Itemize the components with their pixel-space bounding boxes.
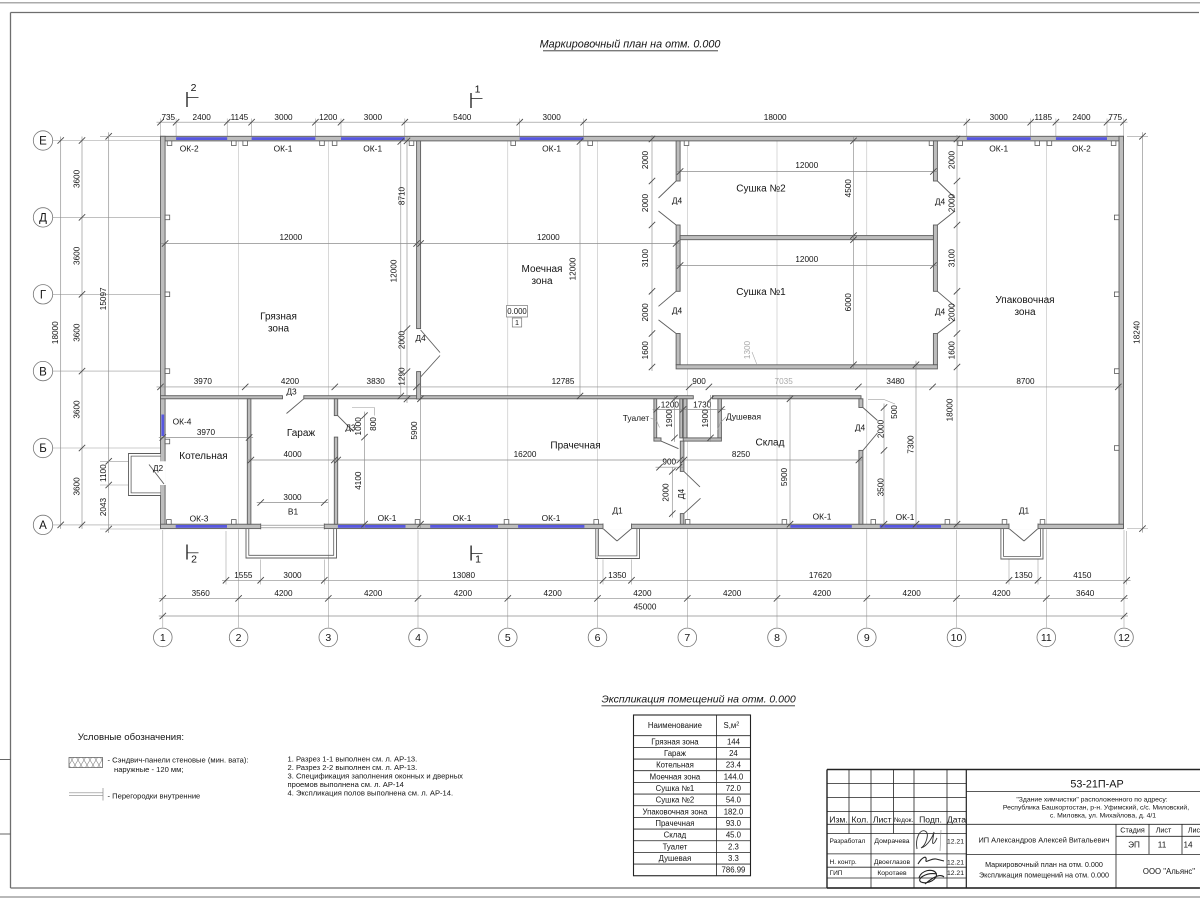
svg-text:3970: 3970 — [194, 377, 213, 386]
svg-text:2043: 2043 — [99, 497, 108, 516]
svg-text:18000: 18000 — [946, 398, 955, 421]
svg-text:12000: 12000 — [795, 161, 818, 170]
svg-text:ОК-1: ОК-1 — [274, 143, 293, 153]
svg-text:Туалет: Туалет — [623, 413, 650, 423]
svg-text:В: В — [39, 366, 47, 378]
svg-text:4200: 4200 — [454, 589, 473, 598]
svg-text:23.4: 23.4 — [726, 761, 742, 770]
svg-text:16200: 16200 — [514, 450, 537, 459]
svg-text:Гараж: Гараж — [664, 749, 687, 758]
svg-text:4200: 4200 — [723, 589, 742, 598]
svg-text:54.0: 54.0 — [726, 796, 742, 805]
svg-text:ОК-1: ОК-1 — [989, 143, 1008, 153]
svg-text:6: 6 — [595, 632, 601, 644]
svg-text:ОК-2: ОК-2 — [180, 143, 199, 153]
svg-text:ОК-1: ОК-1 — [896, 512, 915, 522]
svg-text:ИП Александров Алексей Виталье: ИП Александров Алексей Витальевич — [978, 836, 1109, 845]
svg-text:2000: 2000 — [641, 150, 650, 169]
svg-text:900: 900 — [662, 458, 676, 467]
svg-text:Д3: Д3 — [286, 387, 297, 397]
svg-text:3000: 3000 — [274, 113, 293, 122]
svg-text:4200: 4200 — [544, 589, 563, 598]
svg-text:зона: зона — [531, 276, 553, 287]
svg-text:7: 7 — [684, 632, 690, 644]
svg-text:2000: 2000 — [876, 419, 885, 438]
svg-text:53-21П-АР: 53-21П-АР — [1070, 779, 1123, 791]
svg-text:Сушка №2: Сушка №2 — [656, 796, 695, 805]
svg-text:1: 1 — [160, 632, 166, 644]
svg-text:"Здание химчистки" расположенн: "Здание химчистки" расположенного по адр… — [1016, 797, 1167, 804]
svg-text:182.0: 182.0 — [724, 807, 744, 816]
svg-text:1200: 1200 — [661, 400, 680, 409]
svg-text:Душевая: Душевая — [726, 412, 761, 422]
svg-text:Д4: Д4 — [935, 307, 946, 317]
svg-text:3560: 3560 — [192, 589, 211, 598]
svg-text:12785: 12785 — [552, 377, 575, 386]
svg-text:12000: 12000 — [795, 255, 818, 264]
svg-text:2000: 2000 — [398, 330, 407, 349]
svg-text:2: 2 — [191, 82, 197, 94]
svg-text:1555: 1555 — [234, 571, 253, 580]
svg-text:8250: 8250 — [732, 450, 751, 459]
svg-text:Кол.: Кол. — [852, 815, 869, 825]
svg-text:4200: 4200 — [633, 589, 652, 598]
svg-text:- Перегородки внутренние: - Перегородки внутренние — [108, 792, 201, 801]
svg-text:3830: 3830 — [367, 377, 386, 386]
svg-text:4200: 4200 — [364, 589, 383, 598]
svg-text:4: 4 — [415, 632, 421, 644]
svg-text:3000: 3000 — [990, 113, 1009, 122]
svg-text:3600: 3600 — [73, 477, 82, 496]
svg-text:24: 24 — [729, 749, 738, 758]
svg-text:зона: зона — [268, 324, 290, 335]
svg-text:Разработал: Разработал — [830, 837, 866, 845]
svg-text:Д4: Д4 — [672, 196, 683, 206]
svg-text:18000: 18000 — [51, 321, 60, 344]
svg-text:735: 735 — [161, 113, 175, 122]
svg-text:2: 2 — [236, 632, 242, 644]
svg-text:Б: Б — [39, 443, 47, 455]
svg-text:Н. контр.: Н. контр. — [830, 859, 857, 866]
svg-text:1100: 1100 — [99, 464, 108, 482]
svg-text:3000: 3000 — [364, 113, 383, 122]
svg-text:12000: 12000 — [569, 257, 578, 280]
svg-text:ОК-4: ОК-4 — [173, 417, 192, 427]
svg-text:3: 3 — [325, 632, 331, 644]
svg-text:12: 12 — [1118, 632, 1130, 644]
svg-text:ОК-1: ОК-1 — [542, 513, 561, 523]
svg-text:ОК-1: ОК-1 — [542, 143, 561, 153]
svg-text:1: 1 — [475, 83, 481, 95]
svg-text:4500: 4500 — [844, 179, 853, 198]
svg-text:Д1: Д1 — [1019, 506, 1030, 516]
svg-text:Домрачева: Домрачева — [874, 838, 909, 845]
svg-text:Г: Г — [40, 290, 47, 302]
svg-text:11: 11 — [1041, 632, 1052, 644]
svg-text:3600: 3600 — [73, 323, 82, 342]
svg-text:Грязная: Грязная — [260, 312, 297, 323]
svg-text:4200: 4200 — [813, 589, 832, 598]
svg-text:- Сэндвич-панели стеновые (мин: - Сэндвич-панели стеновые (мин. вата): — [108, 756, 249, 765]
svg-text:3600: 3600 — [73, 169, 82, 188]
svg-text:Упаковочная зона: Упаковочная зона — [643, 807, 708, 816]
svg-text:1: 1 — [475, 554, 481, 566]
svg-text:5900: 5900 — [410, 421, 419, 440]
svg-text:ОК-3: ОК-3 — [190, 513, 209, 523]
svg-text:18240: 18240 — [1133, 321, 1142, 344]
svg-text:1900: 1900 — [665, 409, 674, 428]
svg-text:12000: 12000 — [279, 233, 302, 242]
svg-text:№док.: №док. — [894, 817, 913, 824]
svg-text:Туалет: Туалет — [663, 842, 688, 851]
svg-text:2000: 2000 — [662, 483, 671, 502]
svg-text:800: 800 — [369, 417, 378, 431]
svg-text:1185: 1185 — [1034, 113, 1052, 122]
svg-text:13080: 13080 — [452, 571, 475, 580]
svg-text:14: 14 — [1183, 841, 1193, 850]
svg-text:1300: 1300 — [743, 340, 752, 359]
svg-text:Наименование: Наименование — [648, 721, 702, 730]
svg-text:Д4: Д4 — [935, 197, 946, 207]
svg-text:9: 9 — [864, 632, 870, 644]
svg-text:1200: 1200 — [319, 113, 338, 122]
svg-text:Лист: Лист — [1156, 825, 1172, 834]
svg-text:Моечная зона: Моечная зона — [650, 772, 701, 781]
svg-text:7300: 7300 — [907, 435, 916, 454]
svg-text:Д4: Д4 — [415, 333, 426, 343]
svg-text:Прачечная: Прачечная — [655, 819, 694, 828]
svg-text:2000: 2000 — [948, 150, 957, 169]
svg-text:Гараж: Гараж — [287, 428, 316, 439]
svg-text:ООО "Альянс": ООО "Альянс" — [1143, 867, 1195, 876]
svg-text:5900: 5900 — [780, 467, 789, 486]
svg-text:Сушка №1: Сушка №1 — [736, 287, 786, 298]
svg-text:В1: В1 — [288, 507, 299, 517]
svg-text:4200: 4200 — [903, 589, 922, 598]
svg-text:2.3: 2.3 — [728, 842, 739, 851]
svg-text:Д4: Д4 — [855, 423, 866, 433]
svg-text:12000: 12000 — [389, 259, 398, 282]
svg-text:Котельная: Котельная — [656, 761, 694, 770]
svg-text:3100: 3100 — [641, 249, 650, 268]
svg-text:2400: 2400 — [193, 113, 212, 122]
svg-text:Д4: Д4 — [672, 306, 683, 316]
svg-text:2000: 2000 — [641, 193, 650, 212]
svg-text:ОК-1: ОК-1 — [363, 143, 382, 153]
svg-text:наружные - 120 мм;: наружные - 120 мм; — [114, 765, 183, 774]
svg-text:500: 500 — [890, 405, 899, 419]
svg-text:1730: 1730 — [693, 400, 712, 409]
svg-text:775: 775 — [1108, 113, 1122, 122]
svg-text:1000: 1000 — [354, 417, 363, 436]
svg-text:45.0: 45.0 — [726, 831, 742, 840]
svg-text:Подп.: Подп. — [919, 815, 942, 825]
svg-text:7035: 7035 — [775, 377, 794, 386]
svg-text:3100: 3100 — [948, 249, 957, 268]
svg-text:11: 11 — [1158, 841, 1167, 850]
svg-text:93.0: 93.0 — [726, 819, 742, 828]
svg-text:Республика Башкортостан, р-н.: Республика Башкортостан, р-н. Уфимский, … — [1003, 804, 1189, 812]
svg-text:900: 900 — [692, 377, 706, 386]
svg-text:12.21: 12.21 — [947, 870, 964, 877]
svg-text:ЭП: ЭП — [1128, 841, 1140, 850]
svg-text:Грязная зона: Грязная зона — [651, 737, 699, 746]
svg-text:12.21: 12.21 — [947, 859, 964, 866]
svg-text:Котельная: Котельная — [179, 451, 227, 462]
svg-text:Изм.: Изм. — [829, 815, 847, 825]
svg-text:15097: 15097 — [99, 287, 108, 310]
svg-text:4. Экспликация полов выполнена: 4. Экспликация полов выполнена см. л. АР… — [288, 789, 454, 798]
svg-text:2000: 2000 — [948, 193, 957, 212]
svg-text:Склад: Склад — [664, 831, 687, 840]
svg-text:2: 2 — [191, 554, 197, 566]
svg-text:Д1: Д1 — [612, 506, 623, 516]
svg-text:4200: 4200 — [281, 377, 300, 386]
svg-text:1600: 1600 — [948, 341, 957, 360]
svg-text:Маркировочный план на отм. 0.0: Маркировочный план на отм. 0.000 — [540, 39, 721, 51]
svg-text:2000: 2000 — [948, 303, 957, 322]
svg-text:Сушка №1: Сушка №1 — [656, 784, 695, 793]
svg-text:Д4: Д4 — [676, 488, 686, 499]
svg-text:Лист: Лист — [873, 815, 892, 825]
svg-text:3640: 3640 — [1076, 589, 1095, 598]
svg-text:Склад: Склад — [756, 438, 785, 449]
svg-text:3.3: 3.3 — [728, 854, 739, 863]
svg-text:12000: 12000 — [537, 233, 560, 242]
svg-text:Душевая: Душевая — [659, 854, 692, 863]
svg-text:Двоеглазов: Двоеглазов — [874, 859, 911, 866]
svg-text:144.0: 144.0 — [724, 772, 744, 781]
svg-text:Маркировочный план на отм. 0.0: Маркировочный план на отм. 0.000 — [985, 860, 1103, 869]
svg-text:3480: 3480 — [886, 377, 905, 386]
svg-text:2000: 2000 — [641, 303, 650, 322]
svg-text:зона: зона — [1014, 307, 1036, 318]
svg-text:Условные обозначения:: Условные обозначения: — [78, 732, 184, 743]
svg-text:Стадия: Стадия — [1120, 825, 1145, 834]
svg-text:18000: 18000 — [764, 113, 787, 122]
svg-text:1350: 1350 — [608, 571, 627, 580]
svg-text:0.000: 0.000 — [507, 307, 527, 316]
svg-text:Экспликация помещений на отм.: Экспликация помещений на отм. 0.000 — [979, 871, 1109, 880]
svg-text:Дата: Дата — [947, 815, 966, 825]
svg-text:ОК-1: ОК-1 — [453, 513, 472, 523]
svg-text:5: 5 — [505, 632, 511, 644]
svg-text:1290: 1290 — [398, 367, 407, 386]
svg-text:ОК-2: ОК-2 — [1072, 143, 1091, 153]
svg-text:3970: 3970 — [197, 428, 216, 437]
svg-text:12.21: 12.21 — [947, 839, 964, 846]
svg-text:5400: 5400 — [453, 113, 472, 122]
svg-text:4150: 4150 — [1073, 571, 1092, 580]
svg-text:8700: 8700 — [1016, 377, 1035, 386]
svg-text:А: А — [39, 520, 47, 532]
svg-text:4200: 4200 — [992, 589, 1011, 598]
svg-text:ГИП: ГИП — [830, 870, 843, 877]
svg-text:ОК-1: ОК-1 — [378, 513, 397, 523]
svg-text:786.99: 786.99 — [722, 866, 746, 875]
svg-text:4100: 4100 — [354, 471, 363, 490]
svg-text:1600: 1600 — [641, 341, 650, 360]
svg-text:6000: 6000 — [844, 293, 853, 312]
svg-text:45000: 45000 — [634, 603, 657, 612]
svg-text:3600: 3600 — [73, 400, 82, 419]
svg-text:Моечная: Моечная — [522, 264, 563, 275]
svg-text:8710: 8710 — [398, 186, 407, 205]
svg-text:1145: 1145 — [231, 113, 249, 122]
svg-text:3000: 3000 — [543, 113, 562, 122]
svg-text:72.0: 72.0 — [726, 784, 742, 793]
svg-text:3500: 3500 — [876, 478, 885, 497]
svg-text:Д2: Д2 — [153, 463, 164, 473]
svg-text:144: 144 — [727, 737, 741, 746]
svg-text:10: 10 — [951, 632, 963, 644]
svg-text:ОК-1: ОК-1 — [813, 511, 832, 521]
svg-text:Упаковочная: Упаковочная — [995, 295, 1054, 306]
svg-text:Д: Д — [39, 213, 47, 225]
svg-text:Сушка №2: Сушка №2 — [736, 184, 786, 195]
svg-text:1350: 1350 — [1014, 571, 1033, 580]
svg-text:1: 1 — [515, 318, 519, 327]
svg-text:3000: 3000 — [283, 571, 302, 580]
svg-text:3600: 3600 — [73, 246, 82, 265]
svg-text:Лис: Лис — [1188, 825, 1200, 834]
svg-text:с. Миловка, ул. Михайлова, д.: с. Миловка, ул. Михайлова, д. 4/1 — [1050, 812, 1156, 820]
svg-text:Экспликация помещений на отм.: Экспликация помещений на отм. 0.000 — [602, 694, 796, 706]
svg-text:4000: 4000 — [283, 450, 302, 459]
svg-text:Коротаев: Коротаев — [877, 870, 907, 877]
svg-text:8: 8 — [774, 632, 780, 644]
svg-text:2400: 2400 — [1072, 113, 1091, 122]
svg-text:1900: 1900 — [701, 409, 710, 428]
svg-text:Прачечная: Прачечная — [550, 441, 600, 452]
svg-text:4200: 4200 — [274, 589, 293, 598]
svg-text:3000: 3000 — [283, 493, 302, 502]
svg-text:17620: 17620 — [809, 571, 832, 580]
svg-text:Е: Е — [39, 136, 47, 148]
